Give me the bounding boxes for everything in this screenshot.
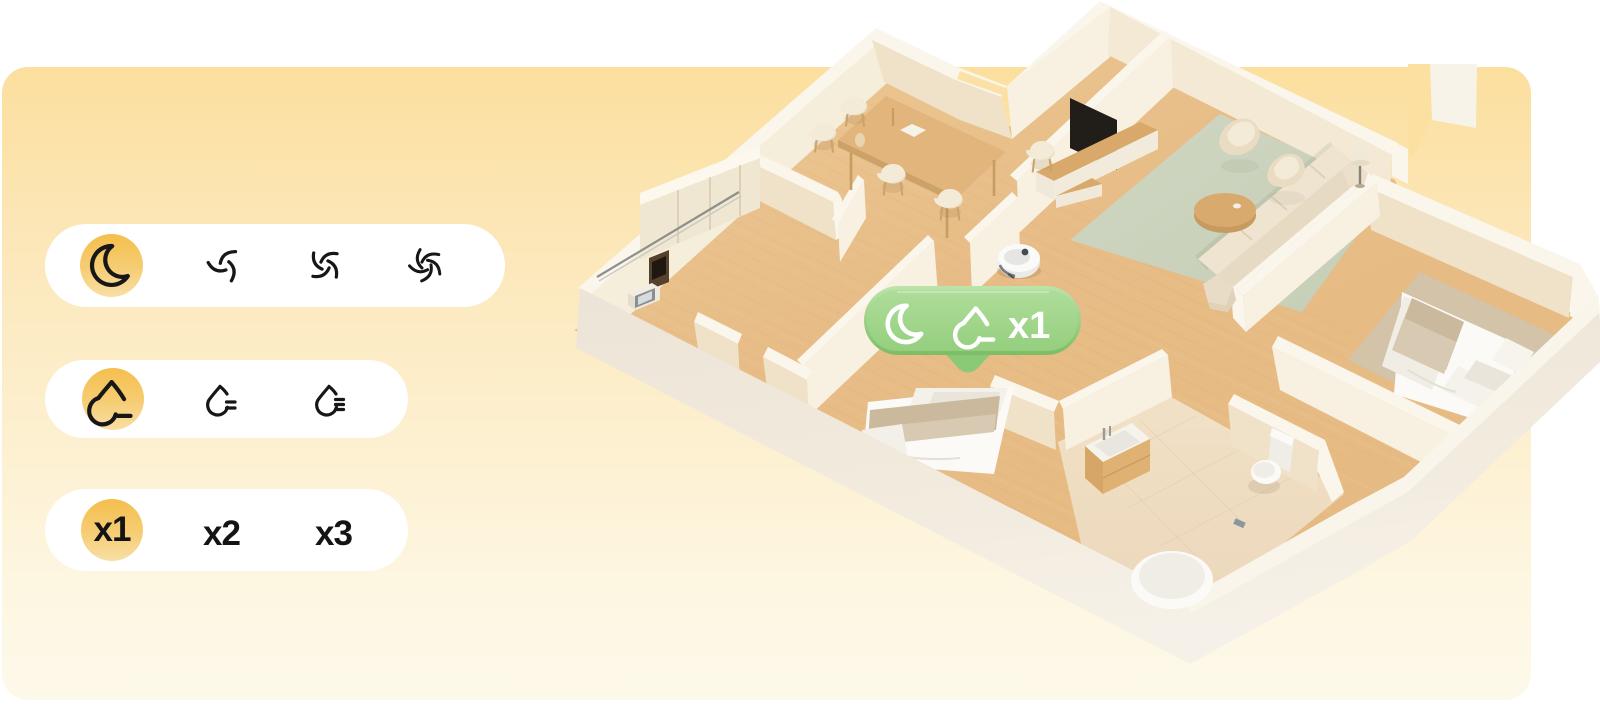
svg-text:x1: x1 bbox=[1008, 305, 1050, 347]
